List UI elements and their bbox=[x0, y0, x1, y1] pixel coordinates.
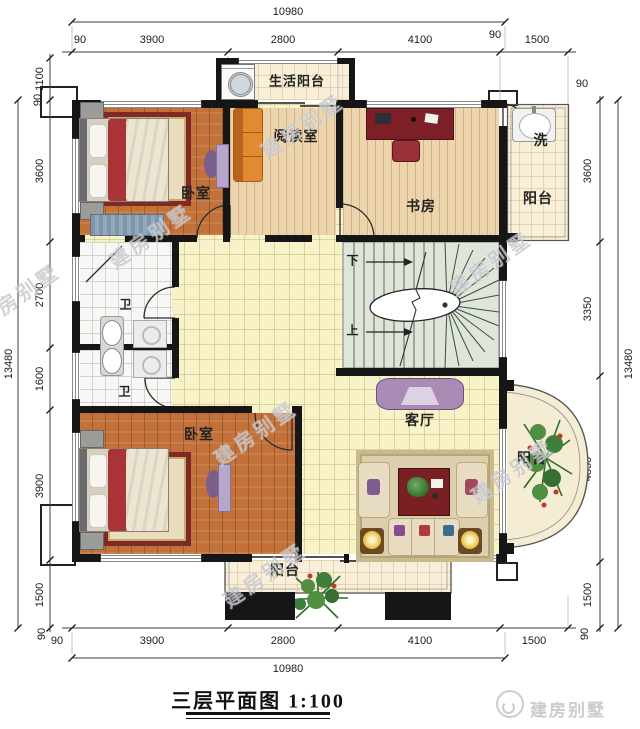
brand-logo-icon bbox=[496, 690, 524, 718]
planter-box bbox=[225, 592, 295, 620]
throw-pillow bbox=[394, 525, 405, 536]
washing-machine bbox=[221, 64, 255, 100]
wall-segment bbox=[72, 235, 85, 242]
dim-bottom-3900: 3900 bbox=[140, 635, 164, 647]
window bbox=[72, 256, 80, 302]
dim-top-3900: 3900 bbox=[140, 34, 164, 46]
bench-bedroom-top bbox=[90, 214, 164, 236]
dim-top-total: 10980 bbox=[273, 6, 304, 18]
balcony-corner-post bbox=[499, 380, 514, 391]
sink bbox=[102, 348, 122, 374]
bed-headboard bbox=[80, 449, 87, 531]
dim-right-4850: 4850 bbox=[582, 457, 594, 481]
sofa-reading-room bbox=[233, 108, 263, 182]
toilet bbox=[133, 350, 167, 378]
dim-left-1600: 1600 bbox=[34, 367, 46, 391]
room-label-bedroom-bottom: 卧室 bbox=[184, 424, 214, 444]
throw-pillow bbox=[367, 479, 380, 495]
dim-bottom-2800: 2800 bbox=[271, 635, 295, 647]
wall-segment bbox=[499, 100, 507, 106]
room-label-balcony-right: 阳台 bbox=[517, 448, 547, 468]
dim-left-3900: 3900 bbox=[34, 474, 46, 498]
wall-segment bbox=[72, 406, 252, 413]
wall-segment bbox=[295, 406, 302, 562]
lamp-glow bbox=[461, 531, 479, 549]
room-label-wash: 洗 bbox=[534, 130, 549, 150]
dim-right-total: 13480 bbox=[623, 349, 635, 380]
corner-pillar bbox=[40, 504, 76, 566]
faucet-icon bbox=[532, 106, 536, 113]
dim-top-90-right: 90 bbox=[489, 29, 501, 41]
dim-top-1500: 1500 bbox=[525, 34, 549, 46]
dim-right-1500: 1500 bbox=[582, 583, 594, 607]
brand-logo-mark bbox=[502, 701, 515, 714]
bed-blanket bbox=[108, 119, 128, 201]
sofa-seam bbox=[434, 519, 435, 555]
window bbox=[100, 100, 202, 108]
chair-study bbox=[392, 140, 420, 162]
stair-label-up: 上 bbox=[346, 322, 359, 339]
dim-right-3350: 3350 bbox=[582, 297, 594, 321]
washer-panel bbox=[222, 68, 254, 69]
dim-bottom-total: 10980 bbox=[273, 663, 304, 675]
desk-study bbox=[366, 108, 454, 140]
dim-left-total: 13480 bbox=[3, 349, 15, 380]
balcony-corner-post bbox=[505, 233, 518, 242]
toilet-bowl bbox=[142, 326, 161, 345]
coffee-table bbox=[398, 468, 450, 516]
dim-bottom-4100: 4100 bbox=[408, 635, 432, 647]
lamp-glow bbox=[363, 531, 381, 549]
dim-right-3600: 3600 bbox=[582, 159, 594, 183]
throw-pillow bbox=[419, 525, 430, 536]
sofa-living-room bbox=[388, 518, 460, 556]
room-label-balcony-bottom: 阳台 bbox=[270, 560, 300, 580]
bowl-icon bbox=[432, 493, 438, 499]
room-label-living-room: 客厅 bbox=[405, 410, 435, 430]
bed-duvet bbox=[126, 449, 168, 531]
pillow bbox=[89, 494, 107, 528]
wall-segment bbox=[349, 58, 355, 100]
stair-label-down: 下 bbox=[346, 252, 359, 269]
dim-right-90-top: 90 bbox=[576, 78, 588, 90]
armchair-left bbox=[358, 462, 390, 518]
bed-bottom bbox=[79, 448, 169, 532]
dim-left-1100: 1100 bbox=[34, 67, 46, 91]
dim-top-2800: 2800 bbox=[271, 34, 295, 46]
dim-bottom-1500: 1500 bbox=[522, 635, 546, 647]
dim-top-90-left: 90 bbox=[74, 34, 86, 46]
floor-balcony-bottom bbox=[225, 560, 451, 594]
sofa-back bbox=[234, 109, 243, 181]
pillow bbox=[89, 454, 107, 488]
tv-stand bbox=[376, 378, 464, 410]
toilet bbox=[133, 320, 167, 348]
brand-logo-text: 建房别墅 bbox=[530, 696, 606, 721]
table-flowers bbox=[407, 477, 429, 497]
wall-segment bbox=[265, 235, 312, 242]
room-label-wc-upper: 卫 bbox=[119, 296, 132, 313]
balcony-corner-post bbox=[499, 543, 514, 554]
throw-pillow bbox=[465, 479, 478, 495]
room-label-wc-lower: 卫 bbox=[118, 383, 131, 400]
dim-left-1500: 1500 bbox=[34, 583, 46, 607]
laptop-icon bbox=[375, 113, 391, 124]
window bbox=[499, 428, 507, 534]
wall-segment bbox=[336, 368, 507, 376]
toilet-bowl bbox=[142, 356, 161, 375]
dim-left-3600: 3600 bbox=[34, 159, 46, 183]
room-label-study: 书房 bbox=[406, 196, 436, 216]
sink bbox=[102, 320, 122, 346]
wall-segment bbox=[336, 100, 343, 208]
title-underline-thin bbox=[186, 718, 330, 719]
washer-drum bbox=[228, 72, 253, 97]
vanity-table bbox=[216, 144, 229, 188]
bed-duvet bbox=[126, 119, 168, 201]
window bbox=[72, 352, 80, 400]
wall-segment bbox=[336, 235, 507, 242]
armchair-right bbox=[456, 462, 488, 518]
floor-lamp bbox=[458, 528, 482, 554]
throw-pillow bbox=[443, 525, 454, 536]
pillow bbox=[89, 164, 107, 198]
nightstand bbox=[80, 430, 104, 448]
room-label-reading-room: 阅读室 bbox=[274, 126, 319, 146]
paper-icon bbox=[431, 479, 443, 488]
plan-title: 三层平面图 1:100 bbox=[171, 685, 345, 714]
paper-icon bbox=[424, 113, 438, 124]
sofa-seam bbox=[411, 519, 412, 555]
title-underline-thick bbox=[186, 712, 330, 715]
bed-top bbox=[79, 118, 169, 202]
tv-stand-top bbox=[395, 385, 445, 405]
watermark: 建房别墅 bbox=[0, 256, 66, 335]
sofa-seam bbox=[243, 132, 262, 133]
bed-headboard bbox=[80, 119, 87, 201]
dim-left-90-top: 90 bbox=[32, 94, 44, 106]
dim-left-2700: 2700 bbox=[34, 283, 46, 307]
wall-segment bbox=[125, 235, 197, 242]
window bbox=[100, 554, 202, 562]
floor-lamp bbox=[360, 528, 384, 554]
window bbox=[366, 100, 482, 108]
corner-pillar bbox=[496, 562, 518, 581]
cup-icon bbox=[411, 117, 416, 122]
pillow bbox=[89, 124, 107, 158]
room-label-life-balcony: 生活阳台 bbox=[269, 71, 325, 90]
dim-top-4100: 4100 bbox=[408, 34, 432, 46]
window bbox=[499, 280, 507, 358]
bed-blanket bbox=[108, 449, 128, 531]
floor-plan-canvas: 生活阳台 卧室 阅读室 书房 洗 阳台 卫 卫 卧室 客厅 阳台 阳台 下 上 … bbox=[0, 0, 640, 729]
room-label-balcony-top-right: 阳台 bbox=[523, 188, 553, 208]
room-label-bedroom-top: 卧室 bbox=[181, 183, 211, 203]
dim-bottom-90: 90 bbox=[51, 635, 63, 647]
sofa-seam bbox=[243, 156, 262, 157]
dim-left-90-bottom: 90 bbox=[36, 628, 48, 640]
vanity-table bbox=[218, 464, 231, 512]
planter-box bbox=[385, 592, 451, 620]
wall-segment bbox=[172, 242, 179, 287]
nightstand bbox=[80, 532, 104, 550]
dim-right-90-bottom: 90 bbox=[579, 628, 591, 640]
